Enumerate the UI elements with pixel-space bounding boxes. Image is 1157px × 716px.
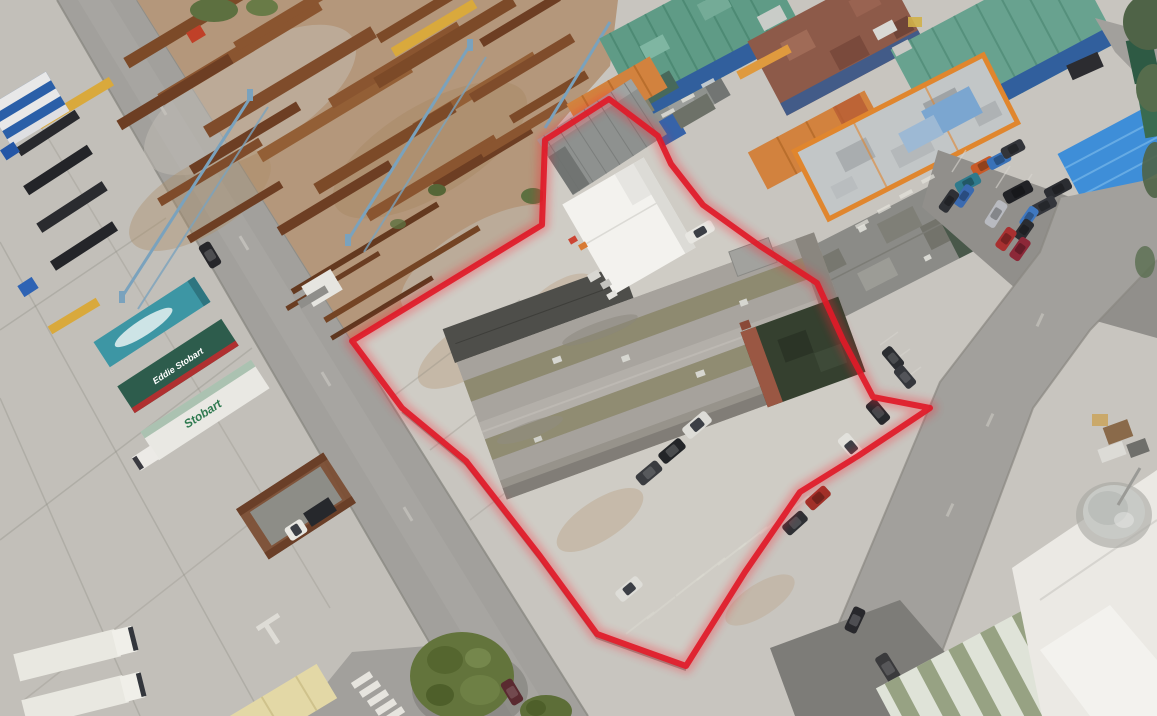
gantry-post <box>345 234 351 246</box>
clutter-yellow <box>908 17 922 27</box>
silver-tank-highlight <box>1114 512 1134 528</box>
vegetation <box>428 184 446 196</box>
gantry-post <box>119 291 125 303</box>
tree-large <box>410 632 514 716</box>
tree-blob <box>426 684 454 706</box>
tree-blob <box>526 700 546 716</box>
gantry-post <box>247 89 253 101</box>
tree <box>1135 246 1155 278</box>
clutter-tan <box>1092 414 1108 426</box>
aerial-photo-stage: Eddie StobartStobart <box>0 0 1157 716</box>
tree-blob <box>465 648 491 668</box>
tree-blob <box>427 646 463 674</box>
vegetation <box>390 219 406 229</box>
aerial-photo: Eddie StobartStobart <box>0 0 1157 716</box>
gantry-post <box>467 39 473 51</box>
tree-blob <box>460 675 500 705</box>
